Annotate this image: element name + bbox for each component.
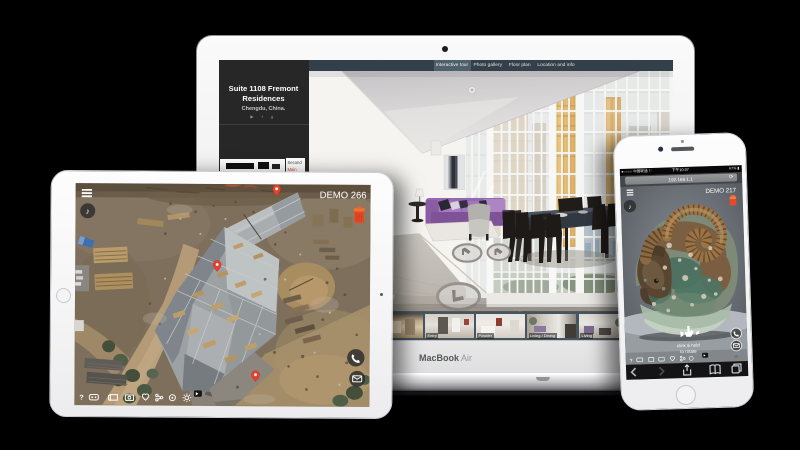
svg-text:?: ?: [629, 357, 632, 363]
svg-text:?: ?: [80, 395, 84, 402]
svg-text:♪: ♪: [86, 207, 90, 216]
svg-text:click & hold: click & hold: [676, 342, 699, 348]
svg-text:to rotate: to rotate: [680, 348, 697, 354]
svg-text:DEMO 266: DEMO 266: [320, 190, 367, 201]
svg-text:♪: ♪: [628, 203, 631, 210]
svg-text:DEMO 217: DEMO 217: [705, 186, 736, 194]
